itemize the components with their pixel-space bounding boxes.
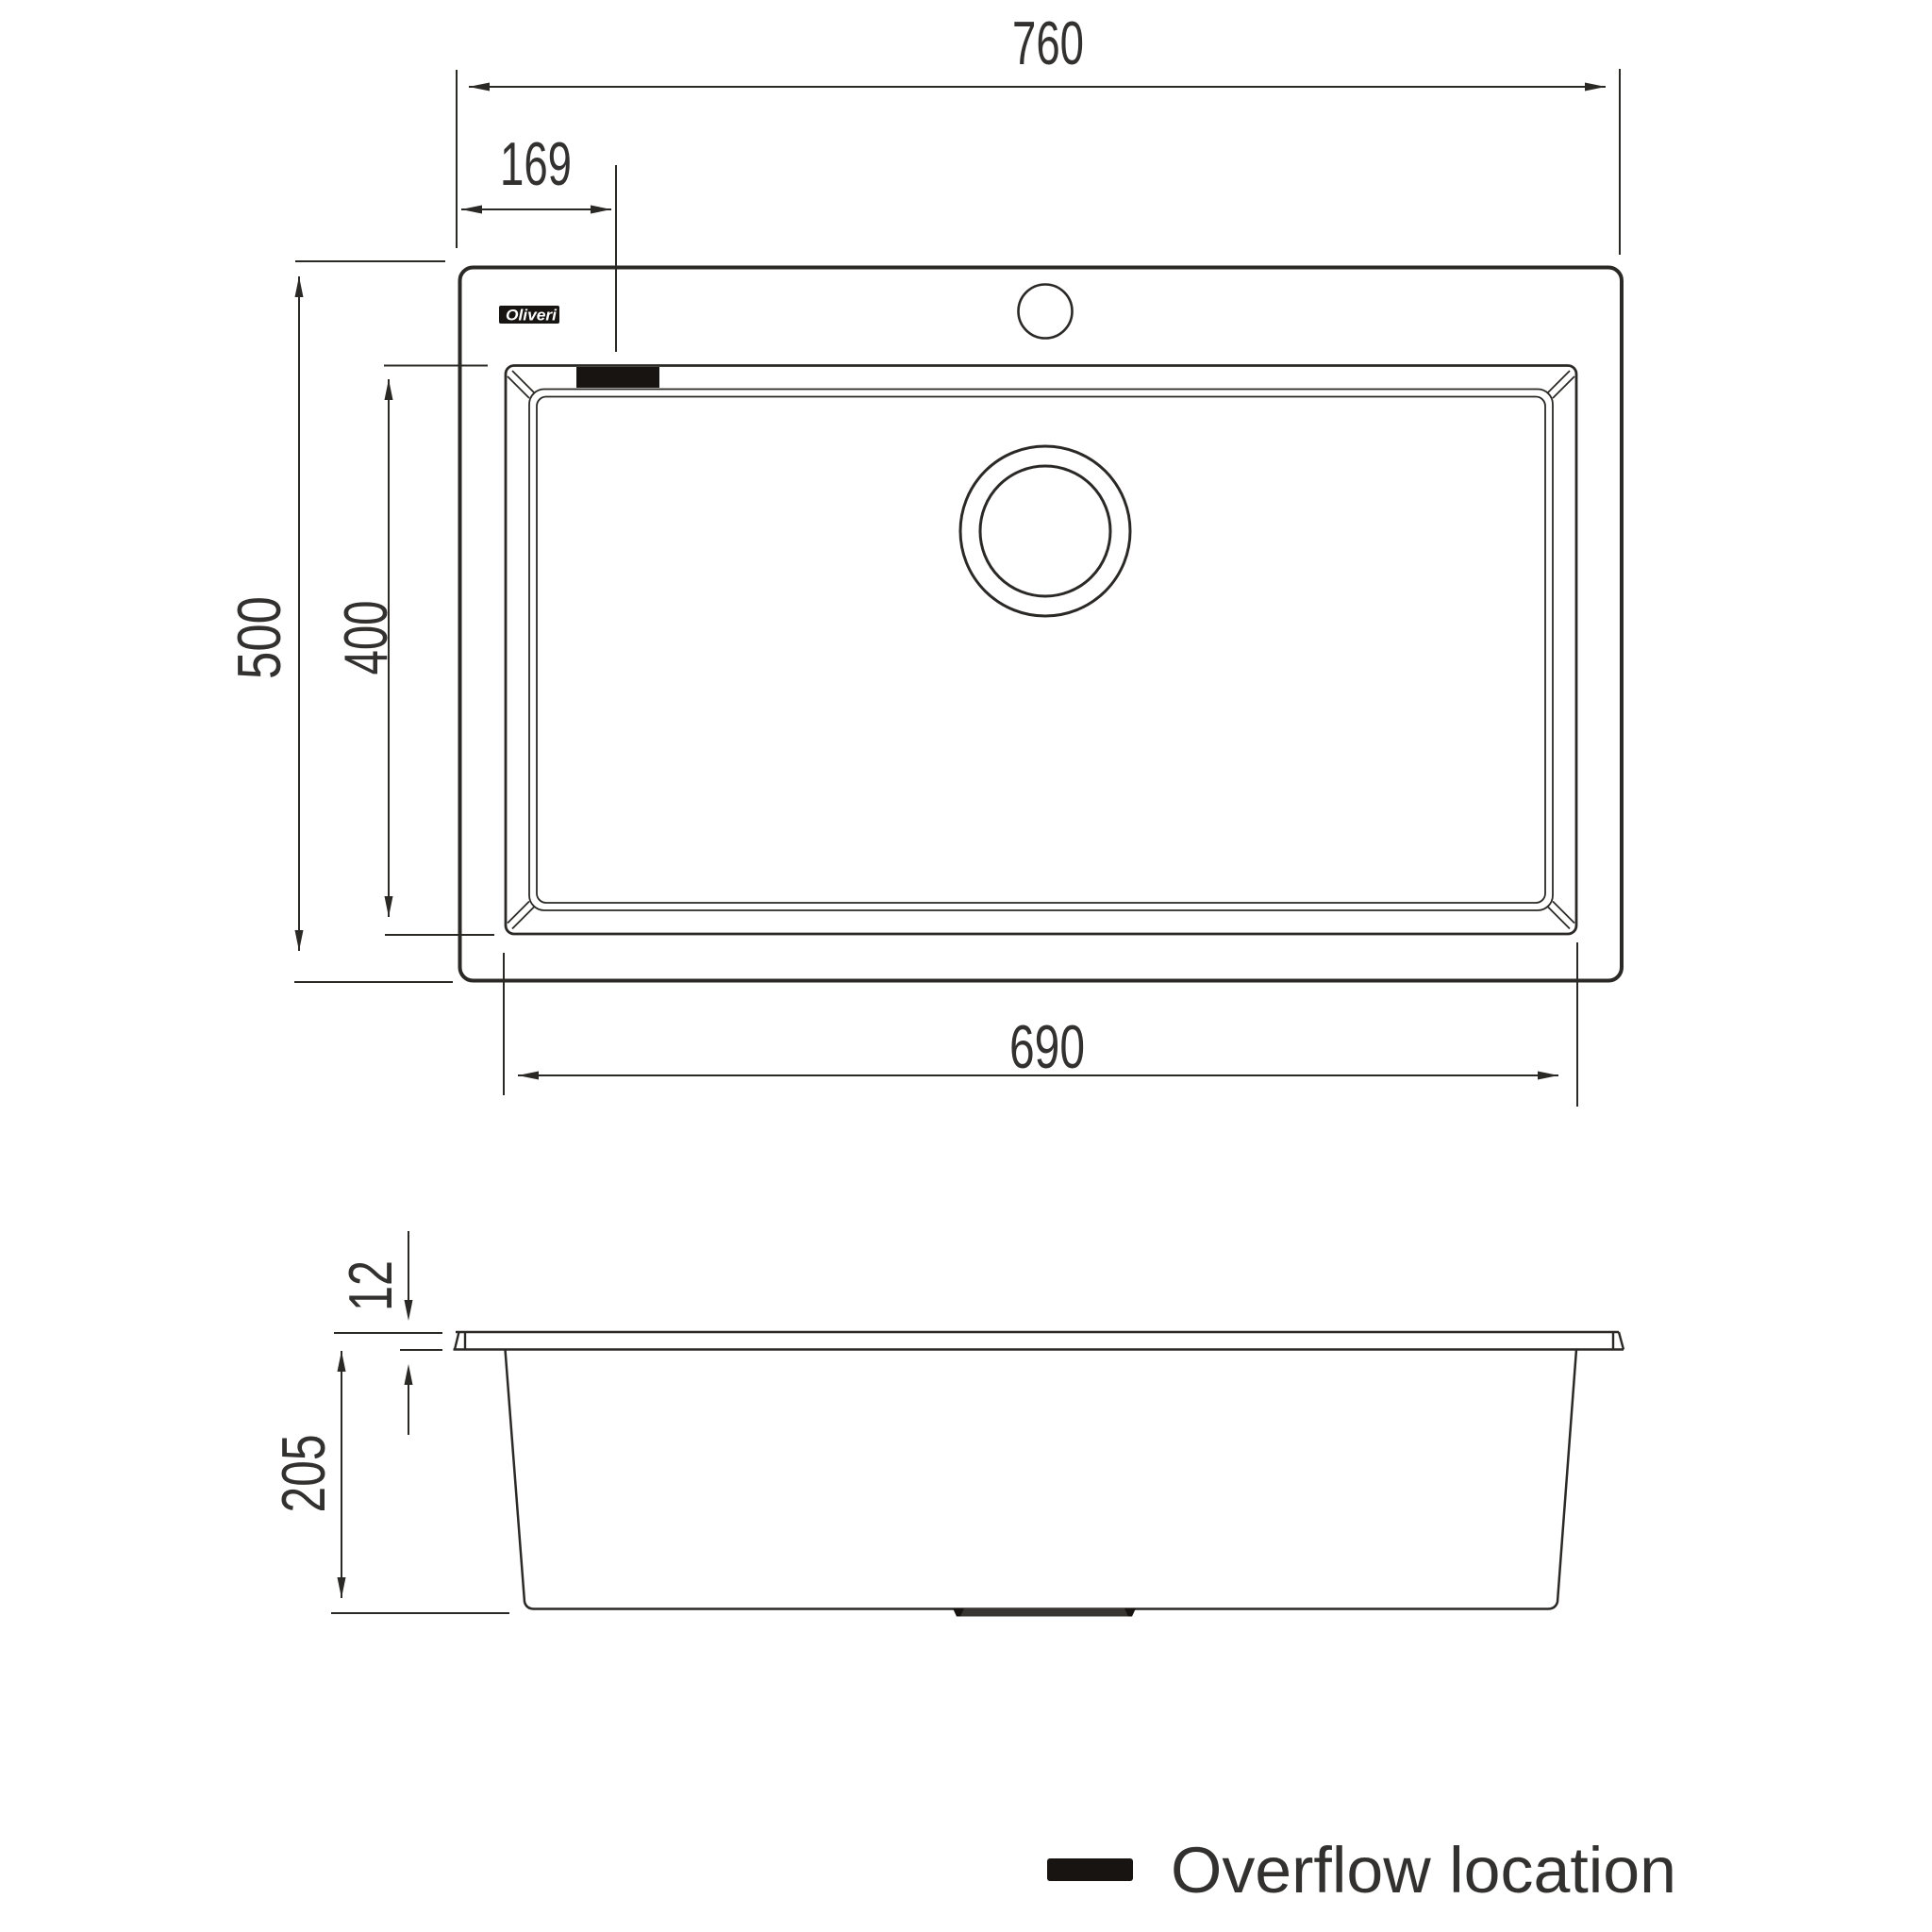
svg-text:Overflow location: Overflow location: [1171, 1834, 1676, 1907]
svg-text:690: 690: [1009, 1012, 1085, 1081]
svg-text:760: 760: [1012, 8, 1084, 77]
svg-text:400: 400: [331, 601, 400, 675]
svg-text:205: 205: [269, 1435, 338, 1513]
svg-text:500: 500: [225, 596, 293, 679]
svg-text:169: 169: [500, 129, 572, 198]
svg-text:Oliveri: Oliveri: [506, 307, 558, 325]
svg-text:12: 12: [336, 1260, 405, 1311]
